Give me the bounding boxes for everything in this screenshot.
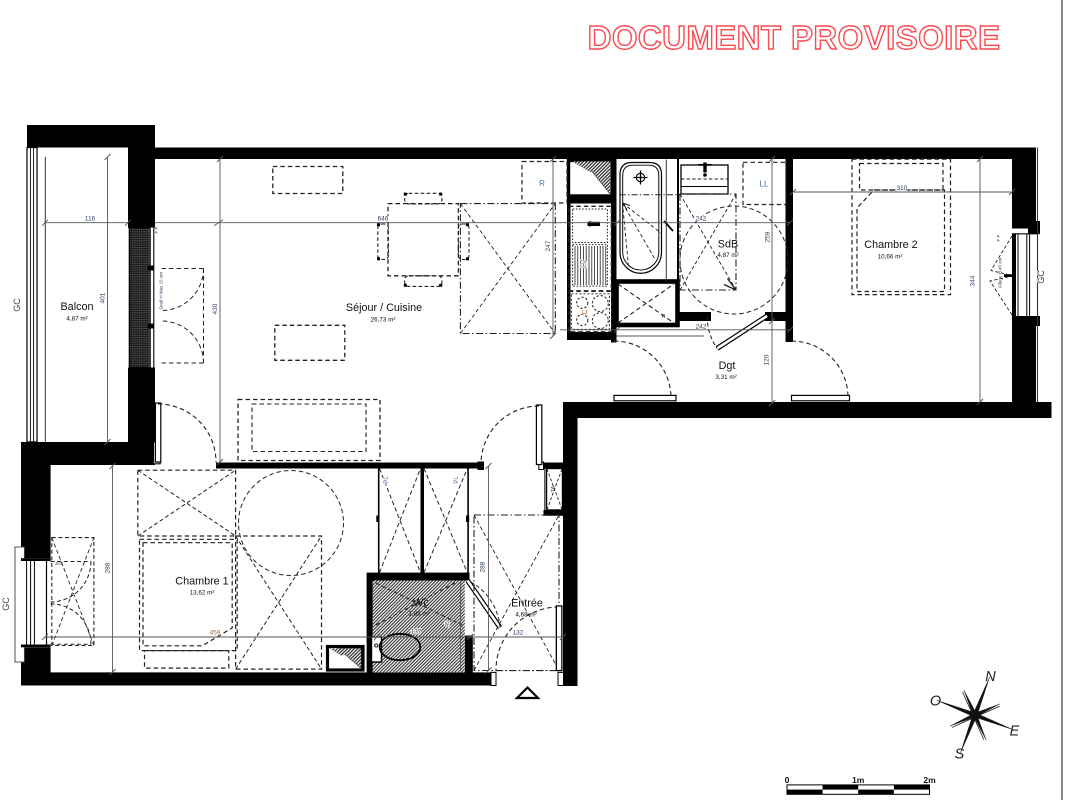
svg-text:Allège H:45 cm: Allège H:45 cm: [998, 257, 1003, 288]
svg-text:242: 242: [696, 323, 707, 330]
svg-text:288: 288: [105, 562, 112, 573]
svg-text:4,87 m²: 4,87 m²: [66, 316, 87, 323]
svg-text:E: E: [1010, 724, 1020, 740]
svg-text:PL: PL: [384, 476, 390, 484]
svg-text:C: C: [582, 309, 589, 314]
svg-text:259: 259: [765, 231, 772, 242]
svg-text:Séjour / Cuisine: Séjour / Cuisine: [346, 302, 422, 314]
svg-text:Balcon: Balcon: [60, 301, 93, 313]
svg-text:R: R: [662, 314, 666, 320]
svg-text:F P: F P: [154, 226, 159, 233]
svg-text:120: 120: [764, 354, 771, 365]
svg-text:GC: GC: [12, 298, 22, 312]
svg-text:1,85 m²: 1,85 m²: [408, 611, 429, 618]
svg-text:459: 459: [210, 630, 221, 637]
svg-text:Entrée: Entrée: [511, 598, 543, 610]
svg-text:1m: 1m: [852, 775, 865, 785]
svg-text:Dgt: Dgt: [719, 360, 736, 372]
svg-text:2m: 2m: [923, 775, 936, 785]
svg-text:Chambre 2: Chambre 2: [864, 239, 917, 251]
svg-text:247: 247: [545, 240, 552, 251]
svg-text:GC: GC: [1036, 270, 1046, 284]
svg-text:O: O: [930, 694, 941, 710]
svg-text:45: 45: [445, 621, 451, 627]
svg-text:13,62 m²: 13,62 m²: [190, 590, 215, 597]
svg-text:132: 132: [513, 630, 524, 637]
svg-text:26,73 m²: 26,73 m²: [371, 317, 396, 324]
svg-text:S: S: [955, 747, 965, 763]
svg-text:3H2: 3H2: [55, 561, 64, 566]
svg-text:344: 344: [970, 275, 977, 286]
svg-text:4,68 m²: 4,68 m²: [515, 612, 536, 619]
svg-text:137: 137: [411, 629, 422, 636]
svg-text:LV: LV: [581, 260, 588, 268]
svg-text:R: R: [539, 179, 545, 188]
svg-text:PL: PL: [454, 476, 460, 484]
svg-text:Seuil H Max 15 cm: Seuil H Max 15 cm: [159, 272, 164, 310]
svg-text:288: 288: [480, 561, 487, 572]
svg-text:242: 242: [696, 216, 707, 223]
svg-text:401: 401: [100, 292, 107, 303]
svg-text:0: 0: [785, 775, 790, 785]
svg-text:Chambre 1: Chambre 1: [175, 576, 228, 588]
svg-text:4,87 m²: 4,87 m²: [717, 252, 738, 259]
svg-text:GC: GC: [1, 597, 11, 611]
svg-text:10,66 m²: 10,66 m²: [878, 254, 903, 261]
svg-text:Wc: Wc: [413, 597, 429, 609]
svg-text:116: 116: [85, 216, 96, 223]
svg-text:DOCUMENT PROVISOIRE: DOCUMENT PROVISOIRE: [588, 19, 1001, 56]
svg-text:SdB: SdB: [718, 239, 738, 251]
svg-text:3,31 m²: 3,31 m²: [715, 374, 736, 381]
svg-text:646: 646: [378, 216, 389, 223]
svg-text:310: 310: [897, 185, 908, 192]
svg-text:430: 430: [212, 303, 219, 314]
svg-text:LL: LL: [760, 180, 769, 189]
svg-text:N: N: [985, 669, 996, 685]
svg-text:TA: TA: [551, 485, 557, 492]
svg-text:F P: F P: [996, 234, 1001, 241]
